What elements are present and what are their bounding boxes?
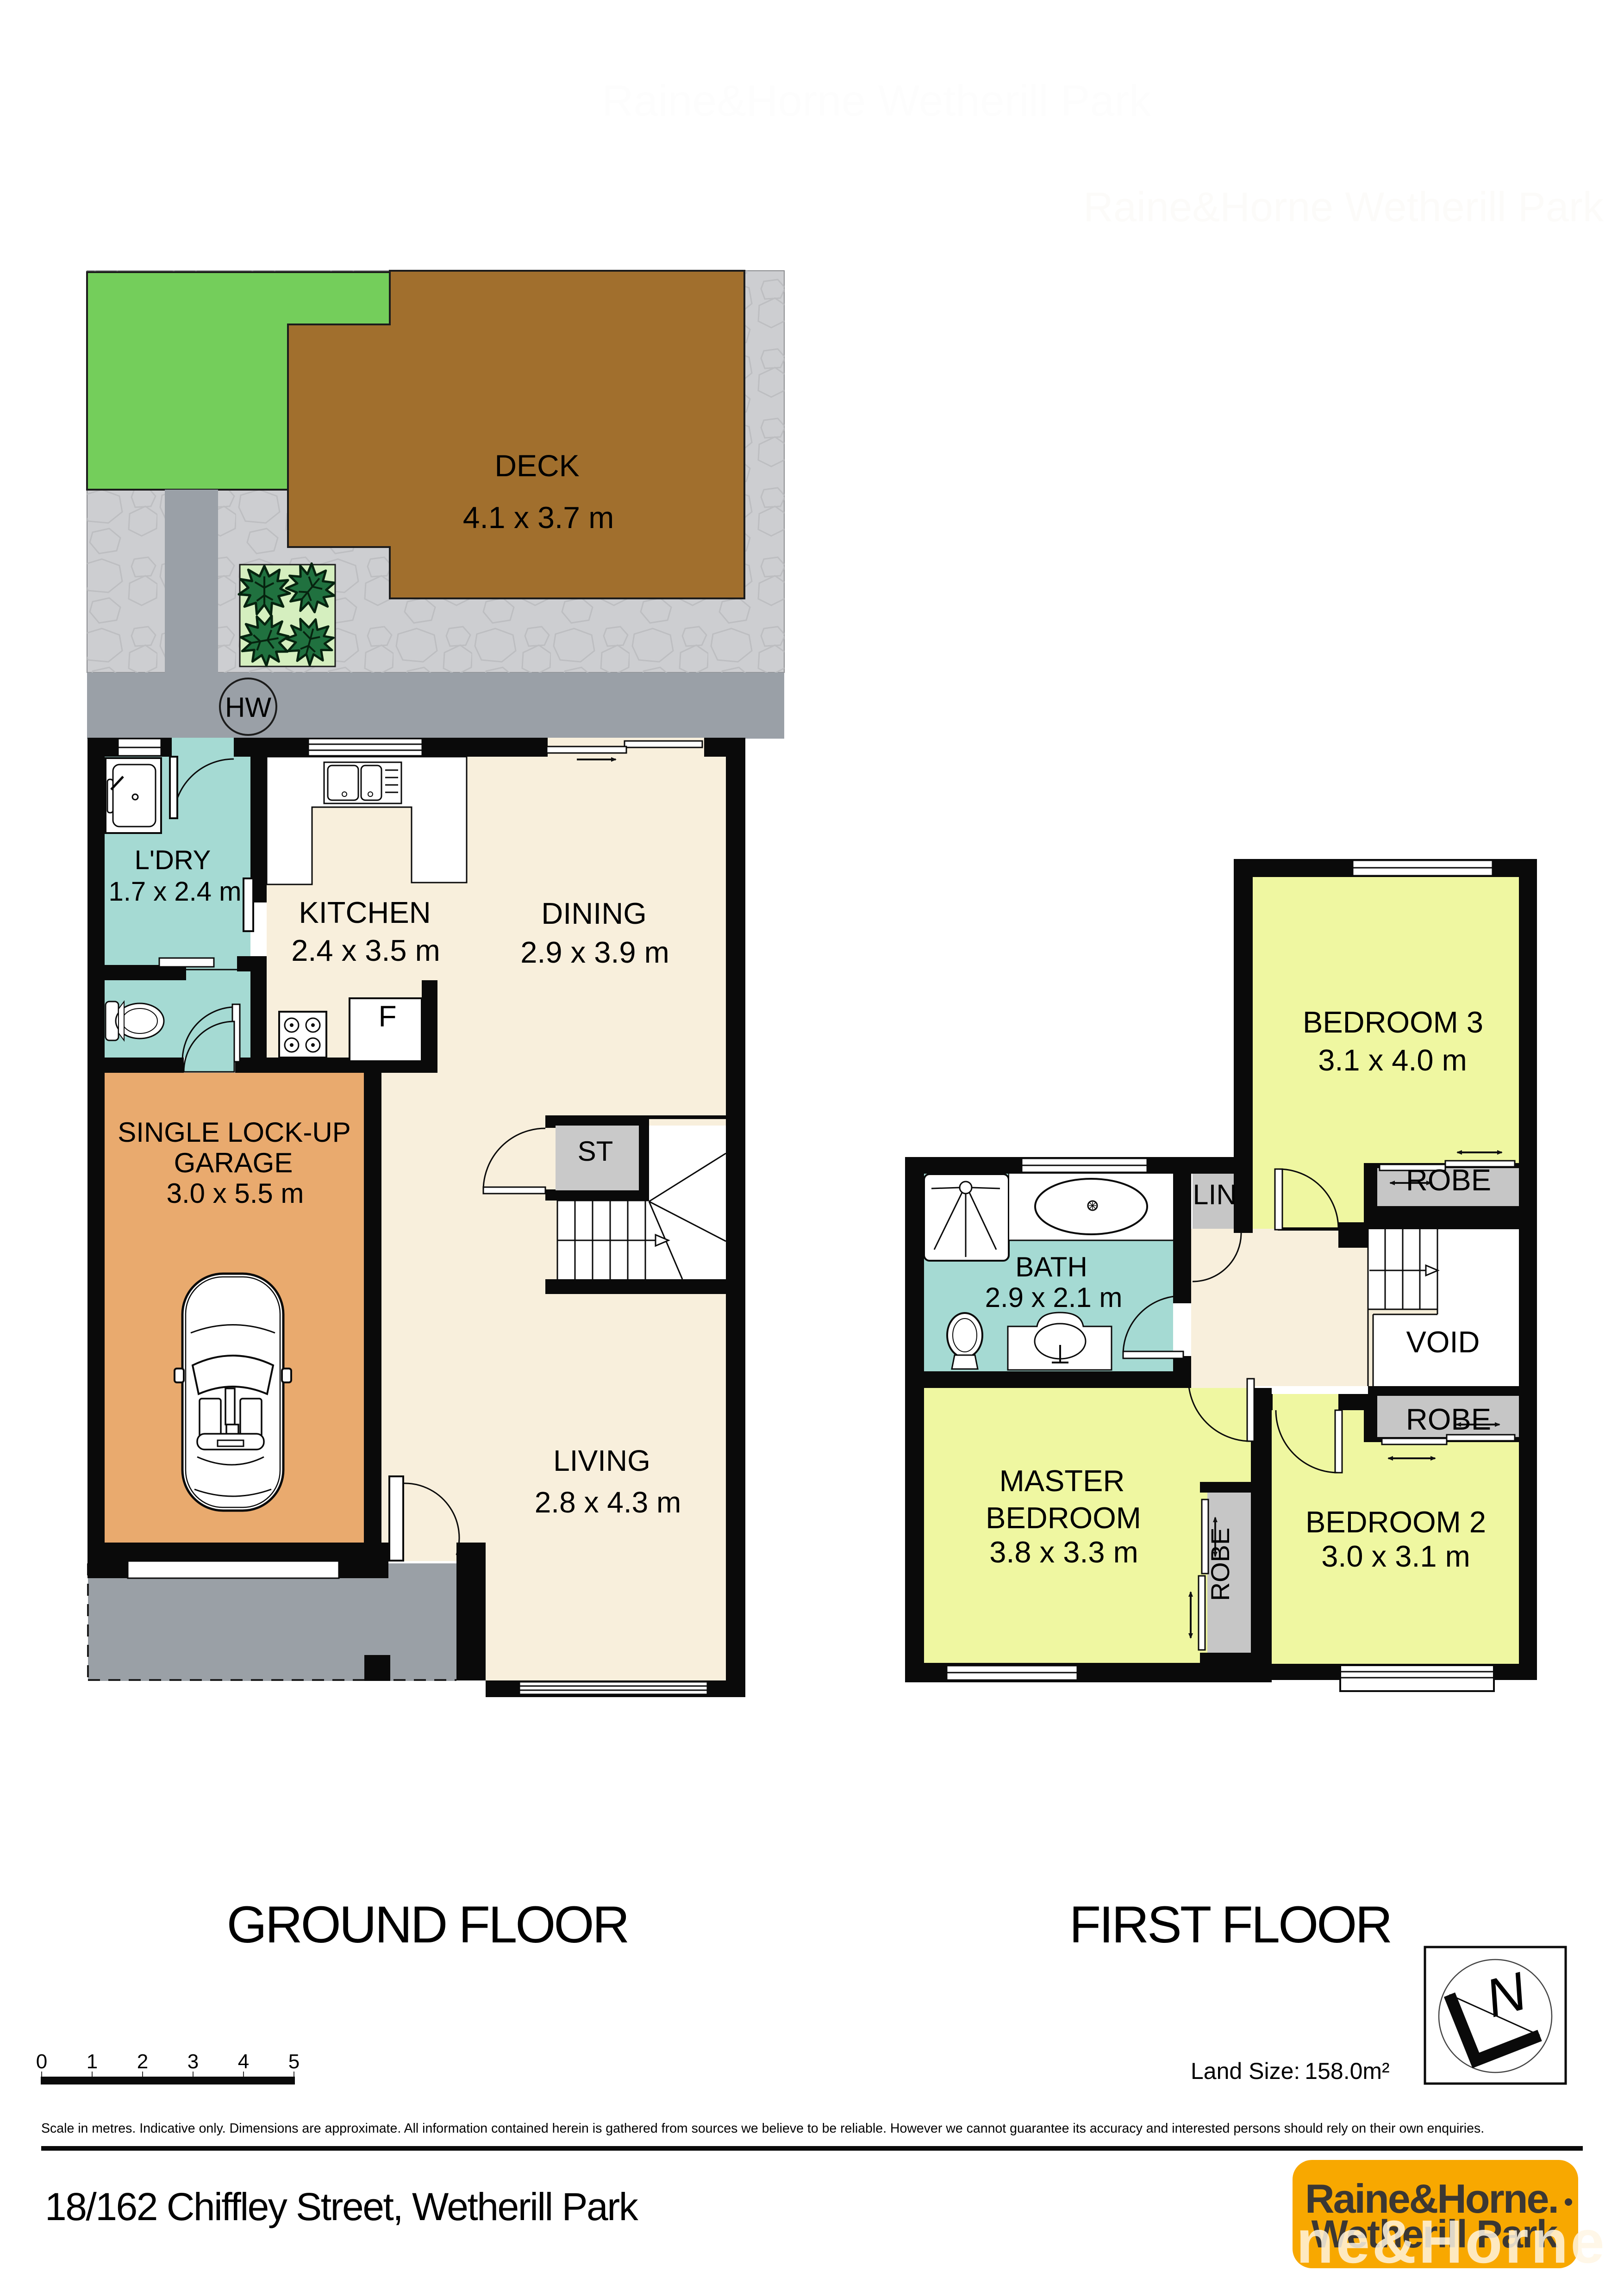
svg-text:KITCHEN: KITCHEN <box>299 896 431 929</box>
svg-text:LIVING: LIVING <box>553 1444 650 1477</box>
svg-text:2.9 x 2.1 m: 2.9 x 2.1 m <box>985 1282 1123 1313</box>
svg-text:4.1 x 3.7 m: 4.1 x 3.7 m <box>463 500 614 535</box>
svg-text:5: 5 <box>288 2050 300 2073</box>
svg-text:DINING: DINING <box>541 896 647 930</box>
svg-text:ROBE: ROBE <box>1406 1402 1491 1436</box>
svg-text:1.7 x 2.4 m: 1.7 x 2.4 m <box>109 877 242 907</box>
svg-text:Raine&Horne Wetherill Park: Raine&Horne Wetherill Park <box>1083 184 1604 230</box>
svg-text:HW: HW <box>225 692 271 723</box>
svg-text:Scale in metres. Indicative on: Scale in metres. Indicative only. Dimens… <box>41 2121 1484 2136</box>
svg-text:3.8 x 3.3 m: 3.8 x 3.3 m <box>989 1535 1138 1569</box>
svg-text:3: 3 <box>187 2050 199 2073</box>
svg-text:ROBE: ROBE <box>1206 1528 1235 1601</box>
svg-text:GARAGE: GARAGE <box>174 1147 293 1178</box>
svg-text:ST: ST <box>578 1136 613 1167</box>
svg-text:BEDROOM: BEDROOM <box>986 1501 1141 1535</box>
svg-text:Land Size: 158.0m²: Land Size: 158.0m² <box>1191 2058 1390 2084</box>
svg-text:L'DRY: L'DRY <box>135 845 211 875</box>
svg-text:DECK: DECK <box>494 448 579 483</box>
svg-text:Raine&Horne Wetherill Park: Raine&Horne Wetherill Park <box>602 76 1151 125</box>
svg-text:18/162 Chiffley Street, Wether: 18/162 Chiffley Street, Wetherill Park <box>45 2185 639 2228</box>
svg-text:3.0 x 5.5 m: 3.0 x 5.5 m <box>167 1178 304 1209</box>
svg-text:ne&Horne: ne&Horne <box>1296 2208 1607 2276</box>
svg-text:4: 4 <box>238 2050 249 2073</box>
svg-text:0: 0 <box>36 2050 47 2073</box>
svg-text:3.0 x 3.1 m: 3.0 x 3.1 m <box>1321 1539 1470 1573</box>
svg-text:MASTER: MASTER <box>999 1464 1125 1498</box>
svg-text:3.1 x 4.0 m: 3.1 x 4.0 m <box>1318 1043 1467 1077</box>
svg-text:ROBE: ROBE <box>1406 1163 1491 1197</box>
svg-text:1: 1 <box>87 2050 98 2073</box>
svg-text:2.8 x 4.3 m: 2.8 x 4.3 m <box>535 1486 681 1519</box>
svg-text:BATH: BATH <box>1015 1251 1087 1282</box>
svg-text:BEDROOM 2: BEDROOM 2 <box>1305 1505 1486 1539</box>
svg-text:2.9 x 3.9 m: 2.9 x 3.9 m <box>520 935 669 969</box>
svg-text:LIN: LIN <box>1193 1179 1237 1210</box>
svg-text:2.4 x 3.5 m: 2.4 x 3.5 m <box>291 933 440 967</box>
svg-text:F: F <box>378 1000 396 1033</box>
svg-text:2: 2 <box>137 2050 148 2073</box>
svg-text:GROUND FLOOR: GROUND FLOOR <box>227 1896 628 1954</box>
svg-text:BEDROOM 3: BEDROOM 3 <box>1303 1005 1483 1039</box>
svg-text:SINGLE LOCK-UP: SINGLE LOCK-UP <box>118 1117 350 1148</box>
svg-text:VOID: VOID <box>1406 1325 1480 1359</box>
svg-text:FIRST FLOOR: FIRST FLOOR <box>1069 1896 1391 1954</box>
